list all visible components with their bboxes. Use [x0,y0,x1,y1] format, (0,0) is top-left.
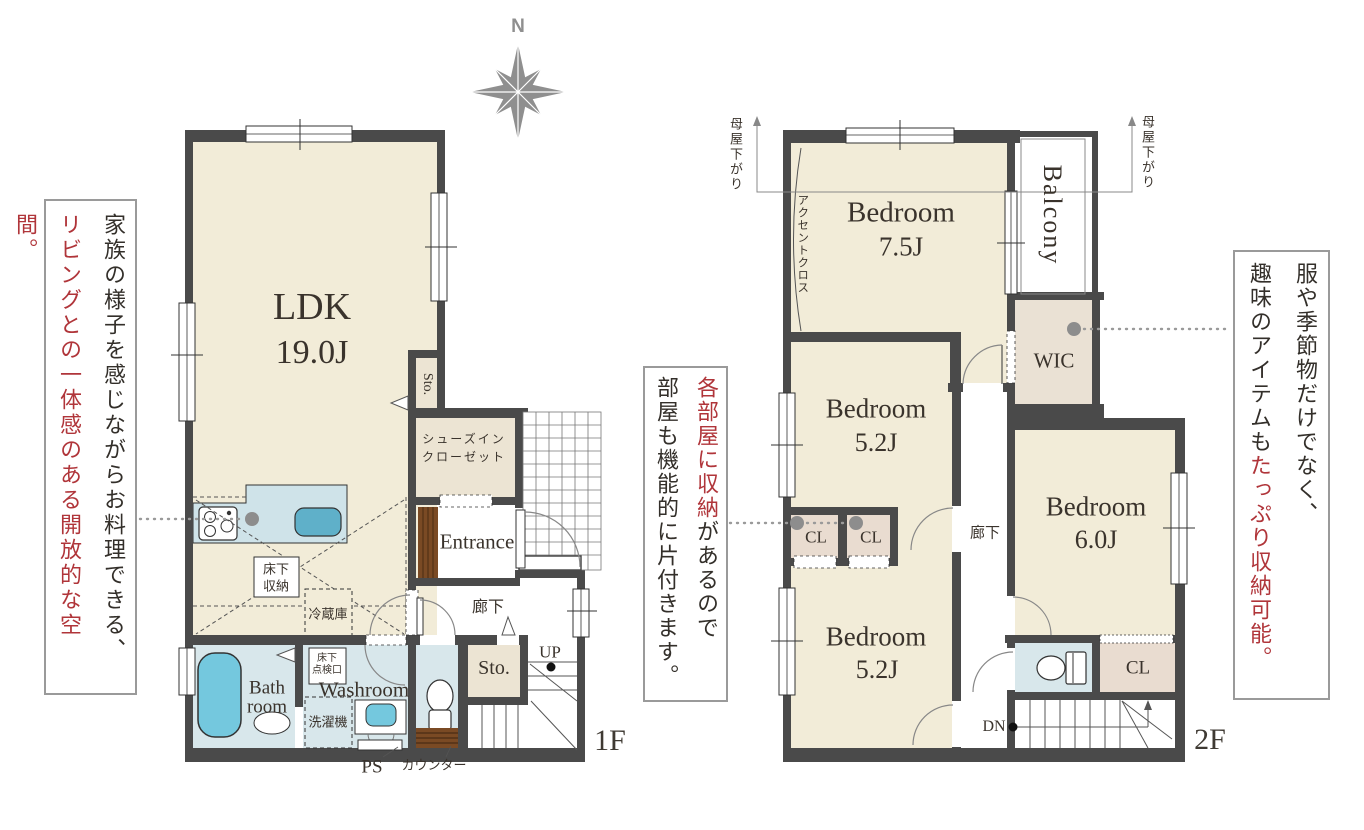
stairs-up-label: UP [539,644,561,661]
room-label-hallway-1f: 廊下 [472,600,504,616]
floorplan-page: N LDK 19.0J Sto. シューズイン クローゼット Entrance … [0,0,1364,830]
dn-start-dot [1009,723,1018,732]
compass-north-label: N [511,16,525,38]
room-area-bedroom1: 7.5J [879,234,923,261]
room-label-bedroom1: Bedroom [847,199,955,228]
room-label-bedroom2: Bedroom [826,396,927,423]
eaves-arrow-left [753,116,761,126]
room-label-balcony: Balcony [1039,165,1065,266]
room-label-storage-1f: Sto. [478,658,510,678]
annotation-box-wic: 服や季節物だけでなく、 趣味のアイテムもたっぷり収納可能。 [1233,250,1330,700]
annotation-wic-line2: 趣味のアイテムもたっぷり収納可能。 [1236,262,1282,688]
room-label-bedroom3: Bedroom [1046,494,1147,521]
room-area-ldk: 19.0J [276,336,349,370]
cl1-leader-dot [790,516,804,530]
label-inspection-hatch-1: 床下 [317,654,337,664]
stairs-dn-label: DN [982,719,1005,735]
room-area-bedroom2: 5.2J [855,430,898,456]
annotation-wic-line1: 服や季節物だけでなく、 [1282,262,1328,688]
floor2-label: 2F [1194,725,1226,755]
label-eaves-left: 母屋下がり [727,117,742,192]
room-label-cl2: CL [860,529,882,546]
wic-leader-dot [1067,322,1081,336]
room-area-bedroom3: 6.0J [1075,527,1118,553]
floor1-plan [171,119,601,762]
label-refrigerator: 冷蔵庫 [308,608,347,621]
stairs-up-arrow [1144,700,1152,710]
compass-rose-icon [470,44,566,140]
label-eaves-right: 母屋下がり [1139,115,1154,190]
room-label-bedroom4: Bedroom [826,624,927,651]
room-label-wic: WIC [1034,351,1075,372]
annotation-ldk-line1: 家族の様子を感じながらお料理できる、 [91,213,135,681]
entrance-porch-grid [523,412,601,570]
room-label-ldk: LDK [273,288,351,326]
annotation-ldk-line2: リビングとの一体感のある開放的な空間。 [3,213,91,681]
label-ps: PS [361,758,382,777]
floor1-label: 1F [594,726,626,756]
label-washing-machine: 洗濯機 [308,716,347,729]
room-label-shoes-closet-2: クローゼット [422,451,506,463]
toilet2-icon [1037,656,1065,680]
up-start-dot [547,663,556,672]
room-label-bath-1: Bath [249,679,285,698]
room-label-cl1: CL [805,529,827,546]
floor2-room-fills [791,138,1175,748]
room-label-entrance: Entrance [440,532,515,553]
room-label-cl3: CL [1126,659,1150,678]
label-underfloor-storage-2: 収納 [263,580,289,593]
eaves-arrow-right [1128,116,1136,126]
room-area-bedroom4: 5.2J [856,657,899,683]
annotation-storage-line2: 部屋も機能的に片付きます。 [646,376,686,692]
room-label-hallway-2f: 廊下 [970,527,1000,542]
label-accent-cloth: アクセントクロス [795,194,808,294]
toilet-icon [427,680,453,712]
room-label-shoes-closet-1: シューズイン [422,433,505,445]
annotation-storage-line1: 各部屋に収納があるので [686,376,726,692]
annotation-box-ldk: 家族の様子を感じながらお料理できる、 リビングとの一体感のある開放的な空間。 [44,199,137,695]
kitchen-leader-dot [245,512,259,526]
bathtub-icon [198,653,241,737]
label-toilet-counter: カウンター [401,759,466,772]
room-label-bath-2: room [247,698,287,717]
room-label-sto-nook: Sto. [420,373,434,395]
room-label-washroom: Washroom [319,680,409,701]
annotation-box-storage: 各部屋に収納があるので 部屋も機能的に片付きます。 [643,366,728,702]
label-inspection-hatch-2: 点検口 [312,666,342,676]
porch-step [519,556,581,570]
label-underfloor-storage-1: 床下 [263,563,289,576]
